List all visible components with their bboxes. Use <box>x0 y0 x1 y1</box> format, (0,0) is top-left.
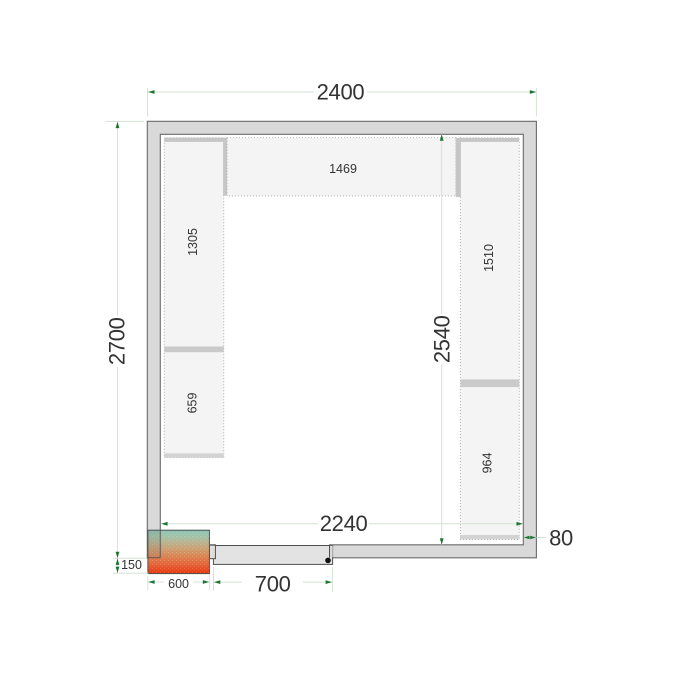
svg-text:150: 150 <box>121 558 142 572</box>
svg-text:659: 659 <box>186 393 200 414</box>
svg-text:1305: 1305 <box>186 228 200 256</box>
svg-text:700: 700 <box>255 571 291 596</box>
svg-text:1510: 1510 <box>482 244 496 272</box>
svg-text:1469: 1469 <box>329 162 357 176</box>
svg-text:964: 964 <box>481 453 495 474</box>
svg-text:80: 80 <box>549 525 573 550</box>
svg-text:2400: 2400 <box>317 79 365 104</box>
svg-text:2540: 2540 <box>430 315 455 363</box>
svg-text:2240: 2240 <box>320 511 368 536</box>
svg-text:2700: 2700 <box>105 317 130 365</box>
svg-text:600: 600 <box>168 577 189 591</box>
